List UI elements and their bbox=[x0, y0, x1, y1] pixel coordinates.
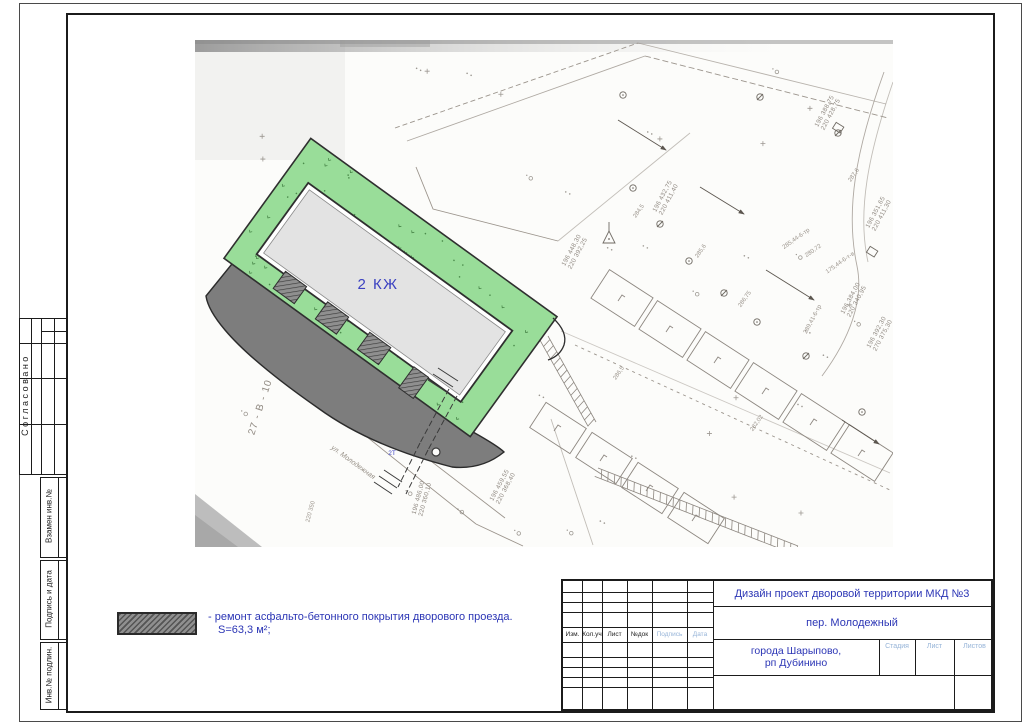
col-ndok: №док bbox=[627, 631, 652, 638]
location-line2: рп Дубинино bbox=[765, 657, 827, 669]
sheets-label: Листов bbox=[954, 643, 995, 650]
project-title: Дизайн проект дворовой территории МКД №3 bbox=[713, 581, 991, 606]
legend-line1: - ремонт асфальто-бетонного покрытия дво… bbox=[208, 611, 513, 624]
inv-original-label: Инв.№ подлин. bbox=[45, 647, 54, 704]
col-koluch: Кол.уч bbox=[582, 631, 602, 638]
legend-asphalt-swatch bbox=[117, 612, 197, 635]
col-izm: Изм. bbox=[563, 631, 582, 638]
utility-point-label: 2Т bbox=[388, 450, 396, 457]
manhole-icon bbox=[432, 448, 440, 456]
legend-line2: S=63,3 м²; bbox=[218, 624, 271, 637]
sign-date-label: Подпись и дата bbox=[45, 570, 54, 628]
stage-label: Стадия bbox=[879, 643, 915, 650]
replace-inv-label: Взамен инв.№ bbox=[45, 489, 54, 543]
sheet-label: Лист bbox=[915, 643, 954, 650]
approved-label: Согласовано bbox=[20, 354, 30, 436]
location-cell: города Шарыпово, рп Дубинино bbox=[713, 639, 879, 675]
object-address: пер. Молодежный bbox=[713, 606, 991, 639]
location-line1: города Шарыпово, bbox=[751, 645, 841, 657]
col-list: Лист bbox=[602, 631, 627, 638]
site-plan-scan: 2 КЖ 2Т 27 - В - 10 ул. Молодежная 196 4… bbox=[195, 40, 893, 547]
title-block: Изм. Кол.уч Лист №док Подпись Дата Дизай… bbox=[561, 579, 993, 711]
drawing-sheet: Согласовано Взамен инв.№ Подпись и дата … bbox=[0, 0, 1024, 724]
col-data: Дата bbox=[687, 631, 713, 638]
col-podpis: Подпись bbox=[652, 631, 687, 638]
building-label: 2 КЖ bbox=[357, 276, 398, 293]
